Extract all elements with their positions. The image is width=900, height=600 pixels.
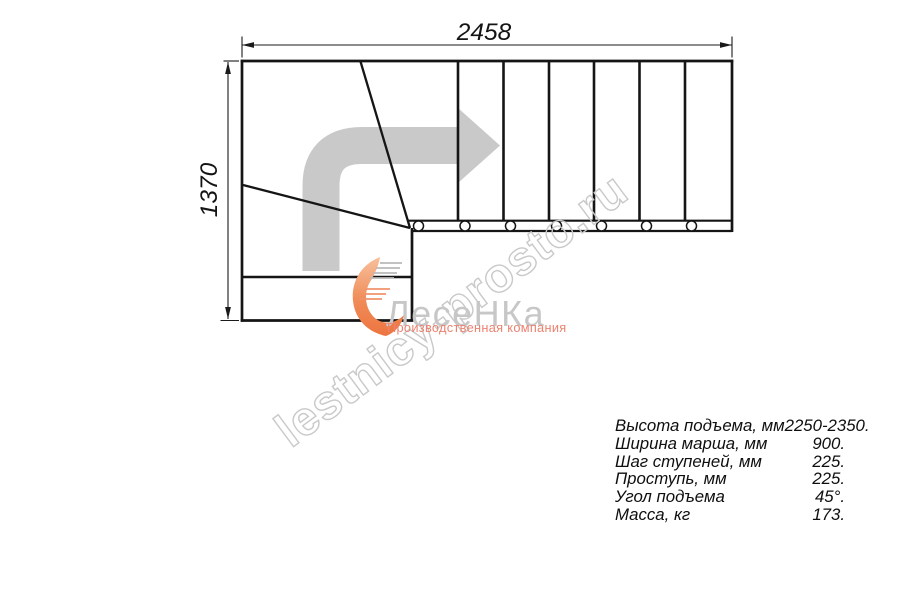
- turn-arrow-head: [458, 108, 500, 183]
- spec-label: Шаг ступеней, мм: [615, 453, 762, 471]
- spec-value: 45°.: [815, 488, 845, 506]
- dim-arrow-left-icon: [242, 42, 254, 48]
- spec-value: 225.: [812, 470, 845, 488]
- spec-row: Ширина марша, мм 900.: [615, 435, 845, 453]
- stair-plan-drawing: 2458 1370 lestnicy-prosto.ru ЛесеНКа: [0, 0, 900, 600]
- spec-row: Проступь, мм 225.: [615, 470, 845, 488]
- bolt-circle-icon: [642, 221, 652, 231]
- logo-company-subtitle: Производственная компания: [387, 320, 567, 335]
- dim-arrow-down-icon: [225, 307, 231, 319]
- dimension-width: 2458: [242, 19, 732, 58]
- dim-arrow-right-icon: [720, 42, 732, 48]
- spec-value: 2250-2350.: [785, 417, 870, 435]
- turn-right-arrow-icon: [321, 108, 500, 271]
- dimension-width-label: 2458: [456, 19, 512, 46]
- spec-label: Масса, кг: [615, 506, 690, 524]
- spec-label: Угол подъема: [615, 488, 725, 506]
- spec-row: Угол подъема 45°.: [615, 488, 845, 506]
- spec-label: Ширина марша, мм: [615, 435, 767, 453]
- bolt-circle-icon: [414, 221, 424, 231]
- bolt-circle-icon: [506, 221, 516, 231]
- spec-value: 900.: [812, 435, 845, 453]
- spec-row: Высота подъема, мм 2250-2350.: [615, 417, 845, 435]
- spec-label: Проступь, мм: [615, 470, 727, 488]
- spec-value: 173.: [812, 506, 845, 524]
- spec-table: Высота подъема, мм 2250-2350. Ширина мар…: [615, 417, 845, 524]
- spec-label: Высота подъема, мм: [615, 417, 785, 435]
- dim-arrow-up-icon: [225, 62, 231, 74]
- dimension-height: 1370: [196, 61, 239, 321]
- dimension-height-label: 1370: [196, 162, 223, 217]
- spec-value: 225.: [812, 453, 845, 471]
- spec-row: Шаг ступеней, мм 225.: [615, 453, 845, 471]
- spec-row: Масса, кг 173.: [615, 506, 845, 524]
- bolt-circle-icon: [460, 221, 470, 231]
- bolt-circle-icon: [687, 221, 697, 231]
